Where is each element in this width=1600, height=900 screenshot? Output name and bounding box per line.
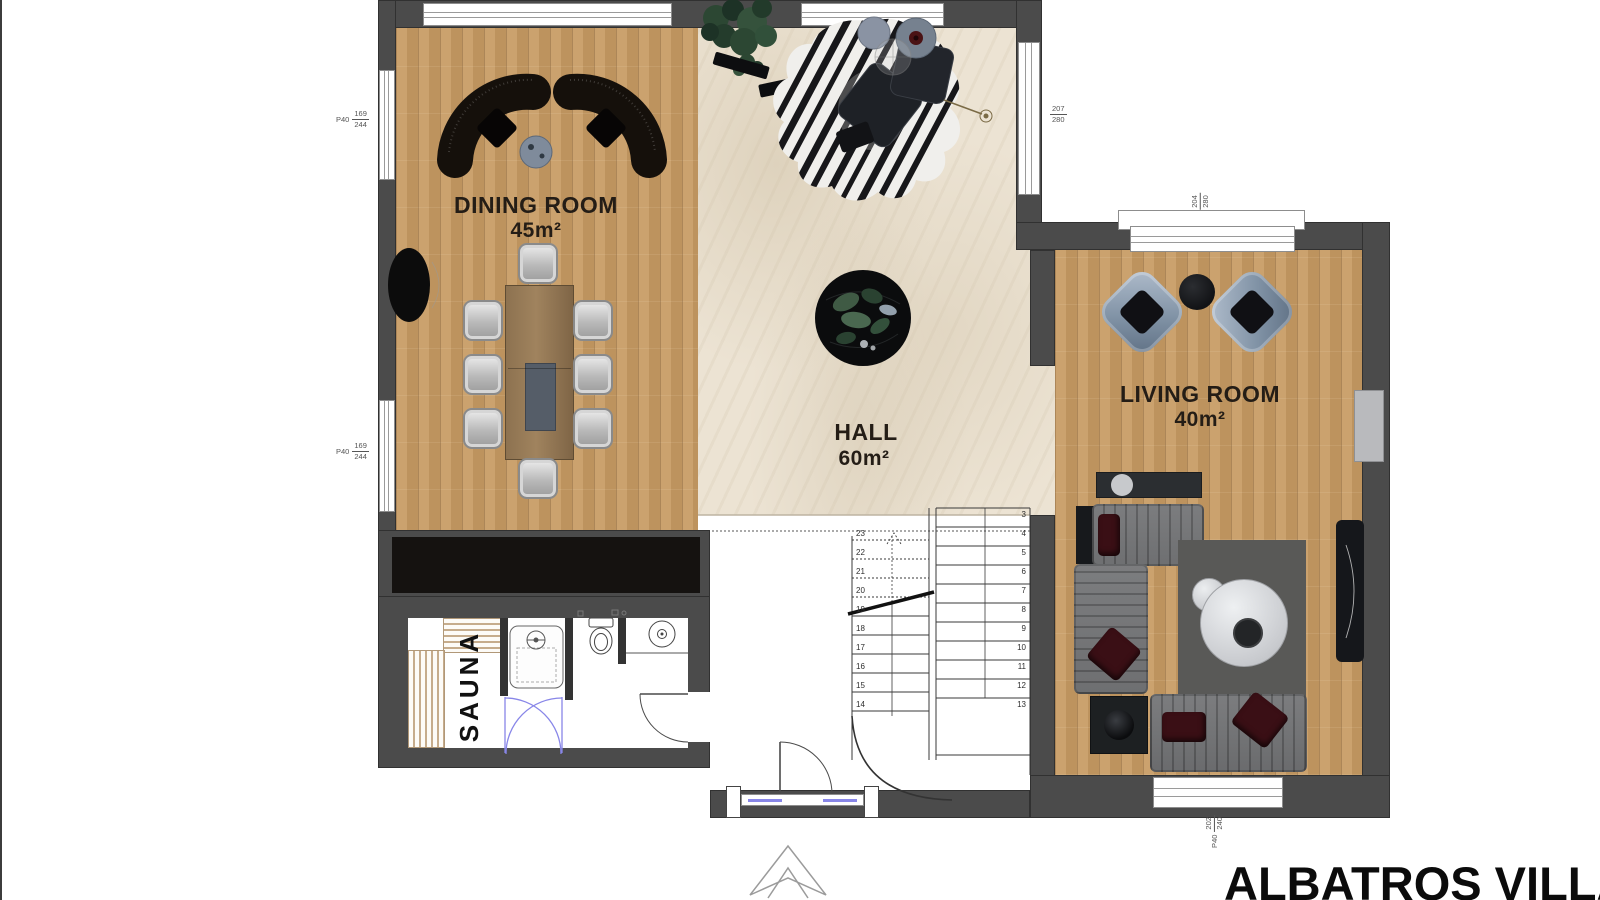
- dining-fan-chairs: [449, 80, 655, 168]
- dimension-living-bottom-window: 202240 P40: [1205, 815, 1224, 848]
- step-number: 11: [1000, 662, 1026, 672]
- dim-num: 202: [1205, 815, 1215, 832]
- room-name: DINING ROOM: [454, 192, 618, 218]
- dining-room-label: DINING ROOM: [454, 192, 618, 219]
- step-number: 6: [1000, 567, 1026, 577]
- dining-sideboard: [388, 248, 439, 322]
- entry-door: [780, 742, 832, 794]
- step-number: 10: [1000, 643, 1026, 653]
- room-area: 40m²: [1174, 408, 1225, 431]
- sauna-label: SAUNA: [454, 621, 482, 751]
- step-number: 3: [1000, 510, 1026, 520]
- dimension-hall-right-window: 207280: [1050, 105, 1067, 124]
- step-number: 22: [856, 548, 865, 558]
- dimension-living-top-window: 204280: [1191, 193, 1210, 210]
- tv-bracket-arc: [1346, 545, 1354, 638]
- step-number: 7: [1000, 586, 1026, 596]
- step-number: 13: [1000, 700, 1026, 710]
- step-number: 18: [856, 624, 865, 634]
- dim-num: 207: [1050, 105, 1067, 115]
- plan-title: ALBATROS VILLA: [1224, 856, 1600, 900]
- dining-room-area: 45m²: [510, 219, 561, 243]
- hall-area: 60m²: [838, 447, 889, 471]
- dimension-left-window-lower: P40 169244: [336, 442, 369, 461]
- dim-den: 240: [1215, 817, 1224, 830]
- room-area: 45m²: [510, 219, 561, 242]
- step-number: 4: [1000, 529, 1026, 539]
- step-number: 21: [856, 567, 865, 577]
- room-name: HALL: [834, 419, 897, 445]
- ceiling-fan-symbol: [875, 39, 911, 75]
- plan-linework: [0, 0, 1600, 900]
- dim-prefix: P40: [336, 448, 349, 456]
- step-number: 23: [856, 529, 865, 539]
- dimension-left-window-upper: P40 169244: [336, 110, 369, 129]
- shower-wall-right: [565, 618, 573, 700]
- step-number: 12: [1000, 681, 1026, 691]
- step-number: 14: [856, 700, 865, 710]
- floor-plan: DINING ROOM 45m² HALL 60m² LIVING ROOM 4…: [0, 0, 1600, 900]
- step-number: 5: [1000, 548, 1026, 558]
- dim-den: 280: [1201, 195, 1210, 208]
- doors: [640, 694, 832, 794]
- north-arrow-icon: [750, 846, 826, 898]
- step-number: 19: [856, 605, 865, 615]
- step-number: 16: [856, 662, 865, 672]
- toilet-icon: [589, 618, 613, 654]
- room-name: LIVING ROOM: [1120, 381, 1280, 407]
- dim-num: 169: [352, 110, 369, 120]
- step-number: 17: [856, 643, 865, 653]
- hall-round-rug: [815, 270, 911, 366]
- bath-partition-wall: [618, 618, 626, 664]
- bathroom-door: [640, 694, 688, 742]
- stair-direction-arrow: [887, 533, 901, 544]
- living-room-area: 40m²: [1174, 408, 1225, 432]
- dim-prefix: P40: [1210, 835, 1218, 848]
- dim-den: 244: [354, 452, 367, 461]
- step-number: 20: [856, 586, 865, 596]
- dim-num: 204: [1191, 193, 1201, 210]
- dim-den: 244: [354, 120, 367, 129]
- dim-den: 280: [1052, 115, 1065, 124]
- shower-doors: [505, 697, 562, 754]
- step-number: 15: [856, 681, 865, 691]
- room-name: SAUNA: [454, 630, 484, 742]
- sink-icon: [649, 621, 675, 647]
- stair-landing-curve: [852, 716, 952, 800]
- step-number: 9: [1000, 624, 1026, 634]
- shower-wall-left: [500, 618, 508, 696]
- room-area: 60m²: [838, 447, 889, 470]
- toilet-accessories: [578, 610, 626, 616]
- dim-num: 169: [352, 442, 369, 452]
- step-number: 8: [1000, 605, 1026, 615]
- hall-label: HALL: [834, 419, 897, 446]
- fan-chairs-side-table: [520, 136, 552, 168]
- living-room-label: LIVING ROOM: [1120, 381, 1280, 408]
- shower-tray: [510, 626, 563, 688]
- dim-prefix: P40: [336, 116, 349, 124]
